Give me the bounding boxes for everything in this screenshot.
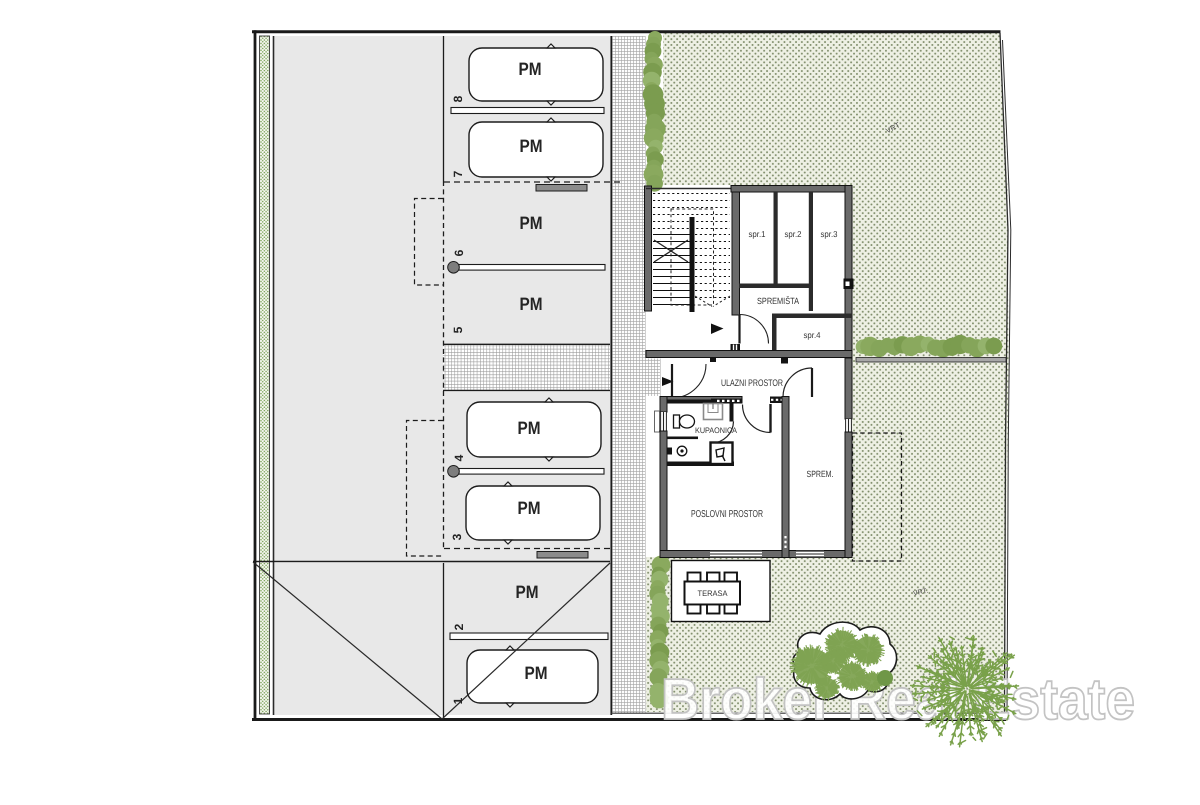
svg-text:3: 3 [450,533,464,540]
svg-text:TERASA: TERASA [698,589,729,598]
svg-text:PM: PM [516,582,539,602]
svg-text:2: 2 [452,623,466,630]
svg-text:POSLOVNI PROSTOR: POSLOVNI PROSTOR [691,509,763,520]
svg-text:SPREMIŠTA: SPREMIŠTA [757,296,799,306]
svg-text:5: 5 [451,326,465,333]
svg-text:PM: PM [520,213,543,233]
svg-text:8: 8 [451,95,465,102]
svg-text:spr.2: spr.2 [785,229,802,239]
svg-text:PM: PM [518,498,541,518]
svg-text:PM: PM [519,59,542,79]
svg-text:PM: PM [525,663,548,683]
svg-text:KUPAONICA: KUPAONICA [695,426,738,435]
svg-text:7: 7 [451,170,465,177]
svg-text:PM: PM [520,294,543,314]
svg-text:Broker Real Estate: Broker Real Estate [661,667,1135,732]
svg-text:6: 6 [452,249,466,256]
svg-text:spr.3: spr.3 [821,229,838,239]
svg-text:PM: PM [520,136,543,156]
svg-text:SPREM.: SPREM. [807,469,834,479]
svg-text:1: 1 [451,697,465,704]
svg-text:spr.4: spr.4 [804,330,821,340]
svg-text:ULAZNI PROSTOR: ULAZNI PROSTOR [721,378,783,389]
svg-text:4: 4 [452,454,466,461]
svg-text:spr.1: spr.1 [749,229,766,239]
svg-text:PM: PM [518,418,541,438]
